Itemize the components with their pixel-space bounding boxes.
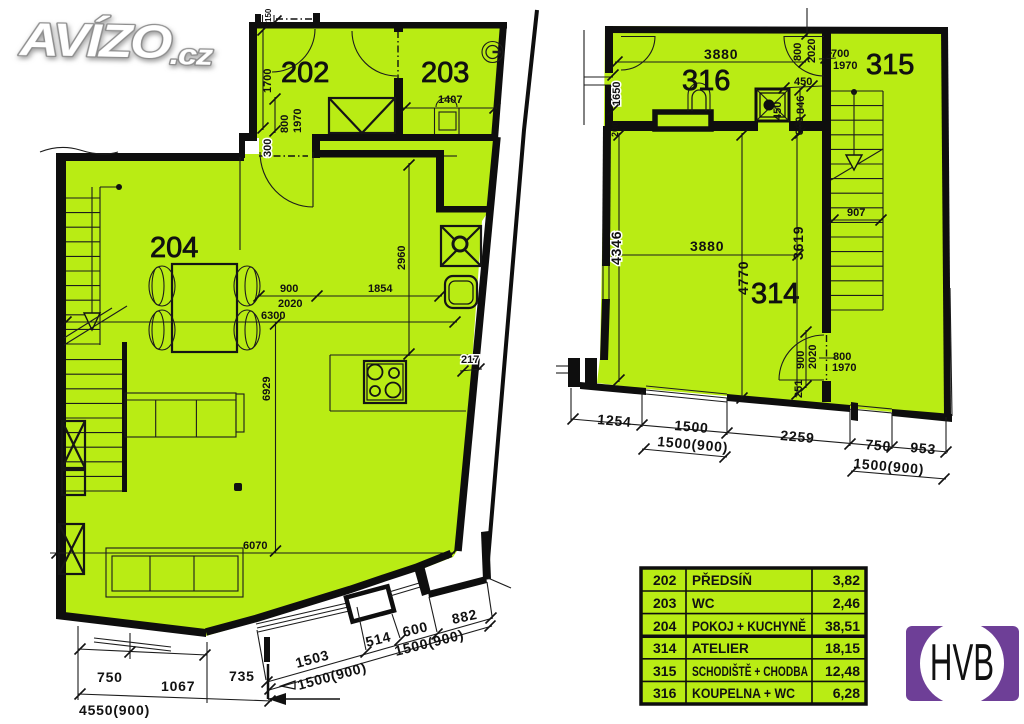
svg-text:6929: 6929 xyxy=(261,377,273,401)
svg-text:1854: 1854 xyxy=(368,283,393,295)
svg-text:150: 150 xyxy=(264,8,273,22)
svg-text:900: 900 xyxy=(280,283,298,295)
svg-text:450: 450 xyxy=(772,102,784,120)
svg-text:KOUPELNA + WC: KOUPELNA + WC xyxy=(692,686,795,701)
svg-text:12,48: 12,48 xyxy=(825,663,860,679)
svg-text:204: 204 xyxy=(653,618,677,634)
svg-text:1650: 1650 xyxy=(611,82,623,106)
svg-text:750: 750 xyxy=(97,669,123,685)
svg-text:6,28: 6,28 xyxy=(833,685,860,701)
svg-text:6070: 6070 xyxy=(243,540,267,552)
svg-text:203: 203 xyxy=(421,57,469,89)
svg-text:2020: 2020 xyxy=(806,39,818,63)
svg-text:3,82: 3,82 xyxy=(833,572,860,588)
svg-text:1067: 1067 xyxy=(161,678,195,694)
svg-text:ATELIER: ATELIER xyxy=(692,641,749,656)
svg-text:4550(900): 4550(900) xyxy=(79,702,150,718)
svg-text:4770: 4770 xyxy=(735,261,751,295)
svg-text:1970: 1970 xyxy=(832,362,856,374)
svg-text:315: 315 xyxy=(866,49,914,81)
svg-text:750: 750 xyxy=(865,436,892,454)
svg-text:18,15: 18,15 xyxy=(825,640,860,656)
svg-text:314: 314 xyxy=(653,640,677,656)
svg-text:HVB: HVB xyxy=(930,634,994,692)
svg-text:217: 217 xyxy=(461,354,479,366)
svg-text:300: 300 xyxy=(262,139,274,157)
svg-text:38,51: 38,51 xyxy=(825,618,860,634)
svg-text:1407: 1407 xyxy=(438,94,462,106)
svg-text:6300: 6300 xyxy=(261,310,285,322)
svg-text:3619: 3619 xyxy=(790,226,806,260)
svg-text:1500: 1500 xyxy=(674,417,710,436)
svg-text:1970: 1970 xyxy=(833,60,857,72)
svg-text:SCHODIŠTĚ + CHODBA: SCHODIŠTĚ + CHODBA xyxy=(692,664,808,679)
svg-text:202: 202 xyxy=(653,572,677,588)
svg-text:POKOJ + KUCHYNĚ: POKOJ + KUCHYNĚ xyxy=(692,619,806,634)
svg-text:1700: 1700 xyxy=(262,69,274,93)
svg-text:3880: 3880 xyxy=(690,238,724,254)
svg-text:900: 900 xyxy=(795,351,807,369)
svg-text:315: 315 xyxy=(653,663,677,679)
svg-text:314: 314 xyxy=(751,278,799,310)
svg-text:800: 800 xyxy=(279,115,291,133)
svg-text:3880: 3880 xyxy=(704,46,738,62)
svg-text:203: 203 xyxy=(653,595,677,611)
svg-text:2020: 2020 xyxy=(807,345,819,369)
svg-text:1970: 1970 xyxy=(292,109,304,133)
svg-text:1254: 1254 xyxy=(597,411,633,430)
svg-text:4346: 4346 xyxy=(608,231,624,265)
svg-text:2020: 2020 xyxy=(278,298,302,310)
svg-text:953: 953 xyxy=(910,439,937,457)
svg-text:2,46: 2,46 xyxy=(833,595,860,611)
svg-text:202: 202 xyxy=(281,57,329,89)
svg-text:2960: 2960 xyxy=(396,246,408,270)
svg-text:204: 204 xyxy=(150,232,198,264)
svg-text:2259: 2259 xyxy=(780,427,816,446)
svg-text:WC: WC xyxy=(692,596,715,611)
svg-text:316: 316 xyxy=(653,685,677,701)
svg-text:PŘEDSÍŇ: PŘEDSÍŇ xyxy=(692,573,752,588)
svg-text:735: 735 xyxy=(229,668,255,684)
svg-text:846: 846 xyxy=(795,96,807,114)
svg-text:907: 907 xyxy=(847,207,865,219)
svg-text:251: 251 xyxy=(793,380,805,398)
svg-text:316: 316 xyxy=(682,65,730,97)
svg-text:800: 800 xyxy=(792,43,804,61)
